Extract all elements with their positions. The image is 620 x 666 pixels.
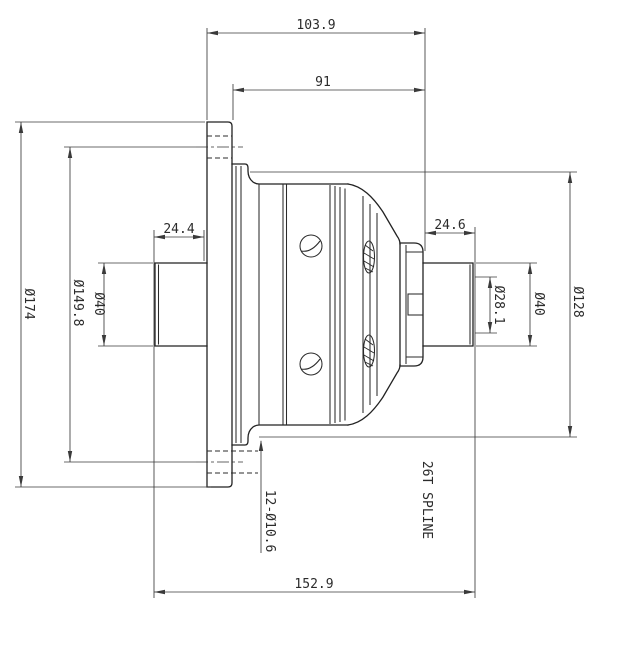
note-spline: 26T SPLINE xyxy=(419,461,434,539)
left-shaft-outline xyxy=(155,263,207,346)
note-bolt-holes: 12-Ø10.6 xyxy=(262,490,277,553)
body-lower-profile xyxy=(232,425,348,445)
dim-label-body-width: 91 xyxy=(315,75,331,90)
right-shaft-outline xyxy=(423,263,473,346)
pin-hole-top xyxy=(300,235,322,257)
dim-label-bolt-circle-diameter: Ø149.8 xyxy=(70,280,85,327)
body-contour-lines xyxy=(236,166,377,443)
bell-curve-bottom xyxy=(348,365,400,425)
end-cap-outline xyxy=(400,243,423,366)
dim-label-bore-diameter: Ø28.1 xyxy=(491,285,506,324)
dim-label-flange-diameter: Ø174 xyxy=(21,288,36,319)
drawing-canvas: 103.9 91 24.4 24.6 152.9 Ø174 Ø149.8 Ø40… xyxy=(0,0,620,666)
dim-label-right-shaft-diameter: Ø40 xyxy=(531,292,546,315)
window-opening-bottom xyxy=(364,335,375,367)
dim-label-top-width: 103.9 xyxy=(296,18,335,33)
body-upper-profile xyxy=(232,164,348,184)
dimension-labels: 103.9 91 24.4 24.6 152.9 Ø174 Ø149.8 Ø40… xyxy=(21,18,585,592)
pin-hole-bottom xyxy=(300,353,322,375)
dim-label-left-shaft-diameter: Ø40 xyxy=(91,292,106,315)
dim-label-body-diameter: Ø128 xyxy=(570,286,585,317)
end-cap-slot xyxy=(408,294,423,315)
technical-drawing: 103.9 91 24.4 24.6 152.9 Ø174 Ø149.8 Ø40… xyxy=(0,0,620,666)
dim-label-left-shaft-length: 24.4 xyxy=(163,222,194,237)
dim-label-overall-length: 152.9 xyxy=(294,577,333,592)
window-opening-top xyxy=(364,241,375,273)
bell-curve-top xyxy=(348,184,400,244)
dim-label-right-shaft-length: 24.6 xyxy=(434,218,465,233)
flange-outline xyxy=(207,122,232,487)
